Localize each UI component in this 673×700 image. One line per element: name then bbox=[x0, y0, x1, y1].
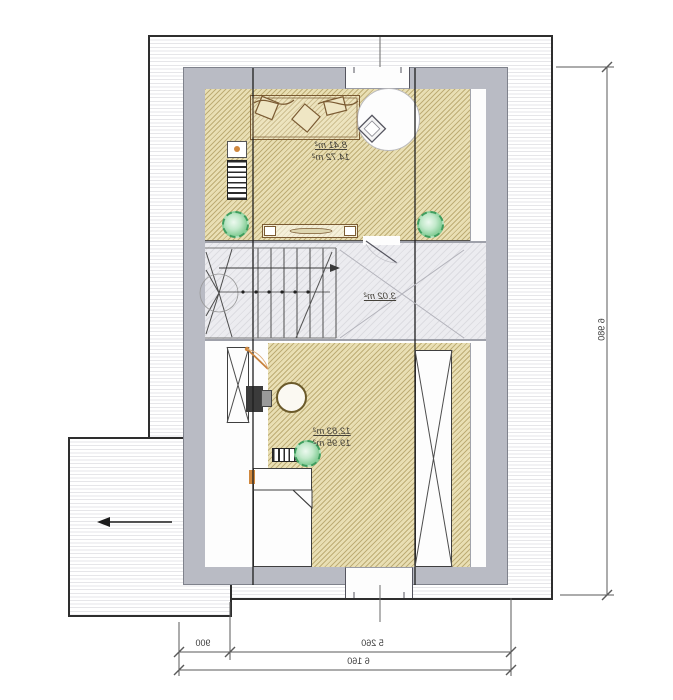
stair-hall-area: 3.02 m² bbox=[340, 291, 420, 303]
top-room-area: 8.41 m² bbox=[291, 140, 371, 152]
bed-details bbox=[253, 96, 358, 137]
roof-slope-arrow bbox=[97, 517, 172, 527]
dim-6980: 6 980 bbox=[595, 295, 608, 365]
bottom-room-area: 12.83 m² bbox=[292, 426, 372, 438]
top-room-area-full: 14.72 m² bbox=[291, 152, 371, 164]
linework-overlay bbox=[0, 0, 673, 700]
dim-900: 900 bbox=[181, 637, 225, 649]
valve-dot bbox=[234, 146, 240, 152]
dim-6160: 6 160 bbox=[331, 655, 386, 667]
closet-door-fold bbox=[253, 490, 312, 508]
bottom-room-door-leaf bbox=[245, 347, 268, 369]
dim-5260: 5 260 bbox=[345, 637, 400, 649]
stair-walkline bbox=[219, 264, 340, 294]
x-brace-icon bbox=[227, 347, 452, 567]
bottom-room-label: 12.83 m² 19.95 m² bbox=[292, 426, 372, 449]
top-room-label: 8.41 m² 14.72 m² bbox=[291, 140, 371, 163]
bottom-room-area-full: 19.95 m² bbox=[292, 438, 372, 450]
sideboard-dish bbox=[290, 228, 332, 233]
rug-chair bbox=[359, 115, 386, 142]
hall-door-leaf bbox=[366, 241, 397, 263]
dim-6980-value: 6 980 bbox=[595, 318, 607, 341]
dimension-lines bbox=[174, 62, 614, 676]
stair-hall-label: 3.02 m² bbox=[340, 291, 420, 303]
floor-plan-canvas: 8.41 m² 14.72 m² 3.02 m² 12.83 m² 19.95 … bbox=[0, 0, 673, 700]
